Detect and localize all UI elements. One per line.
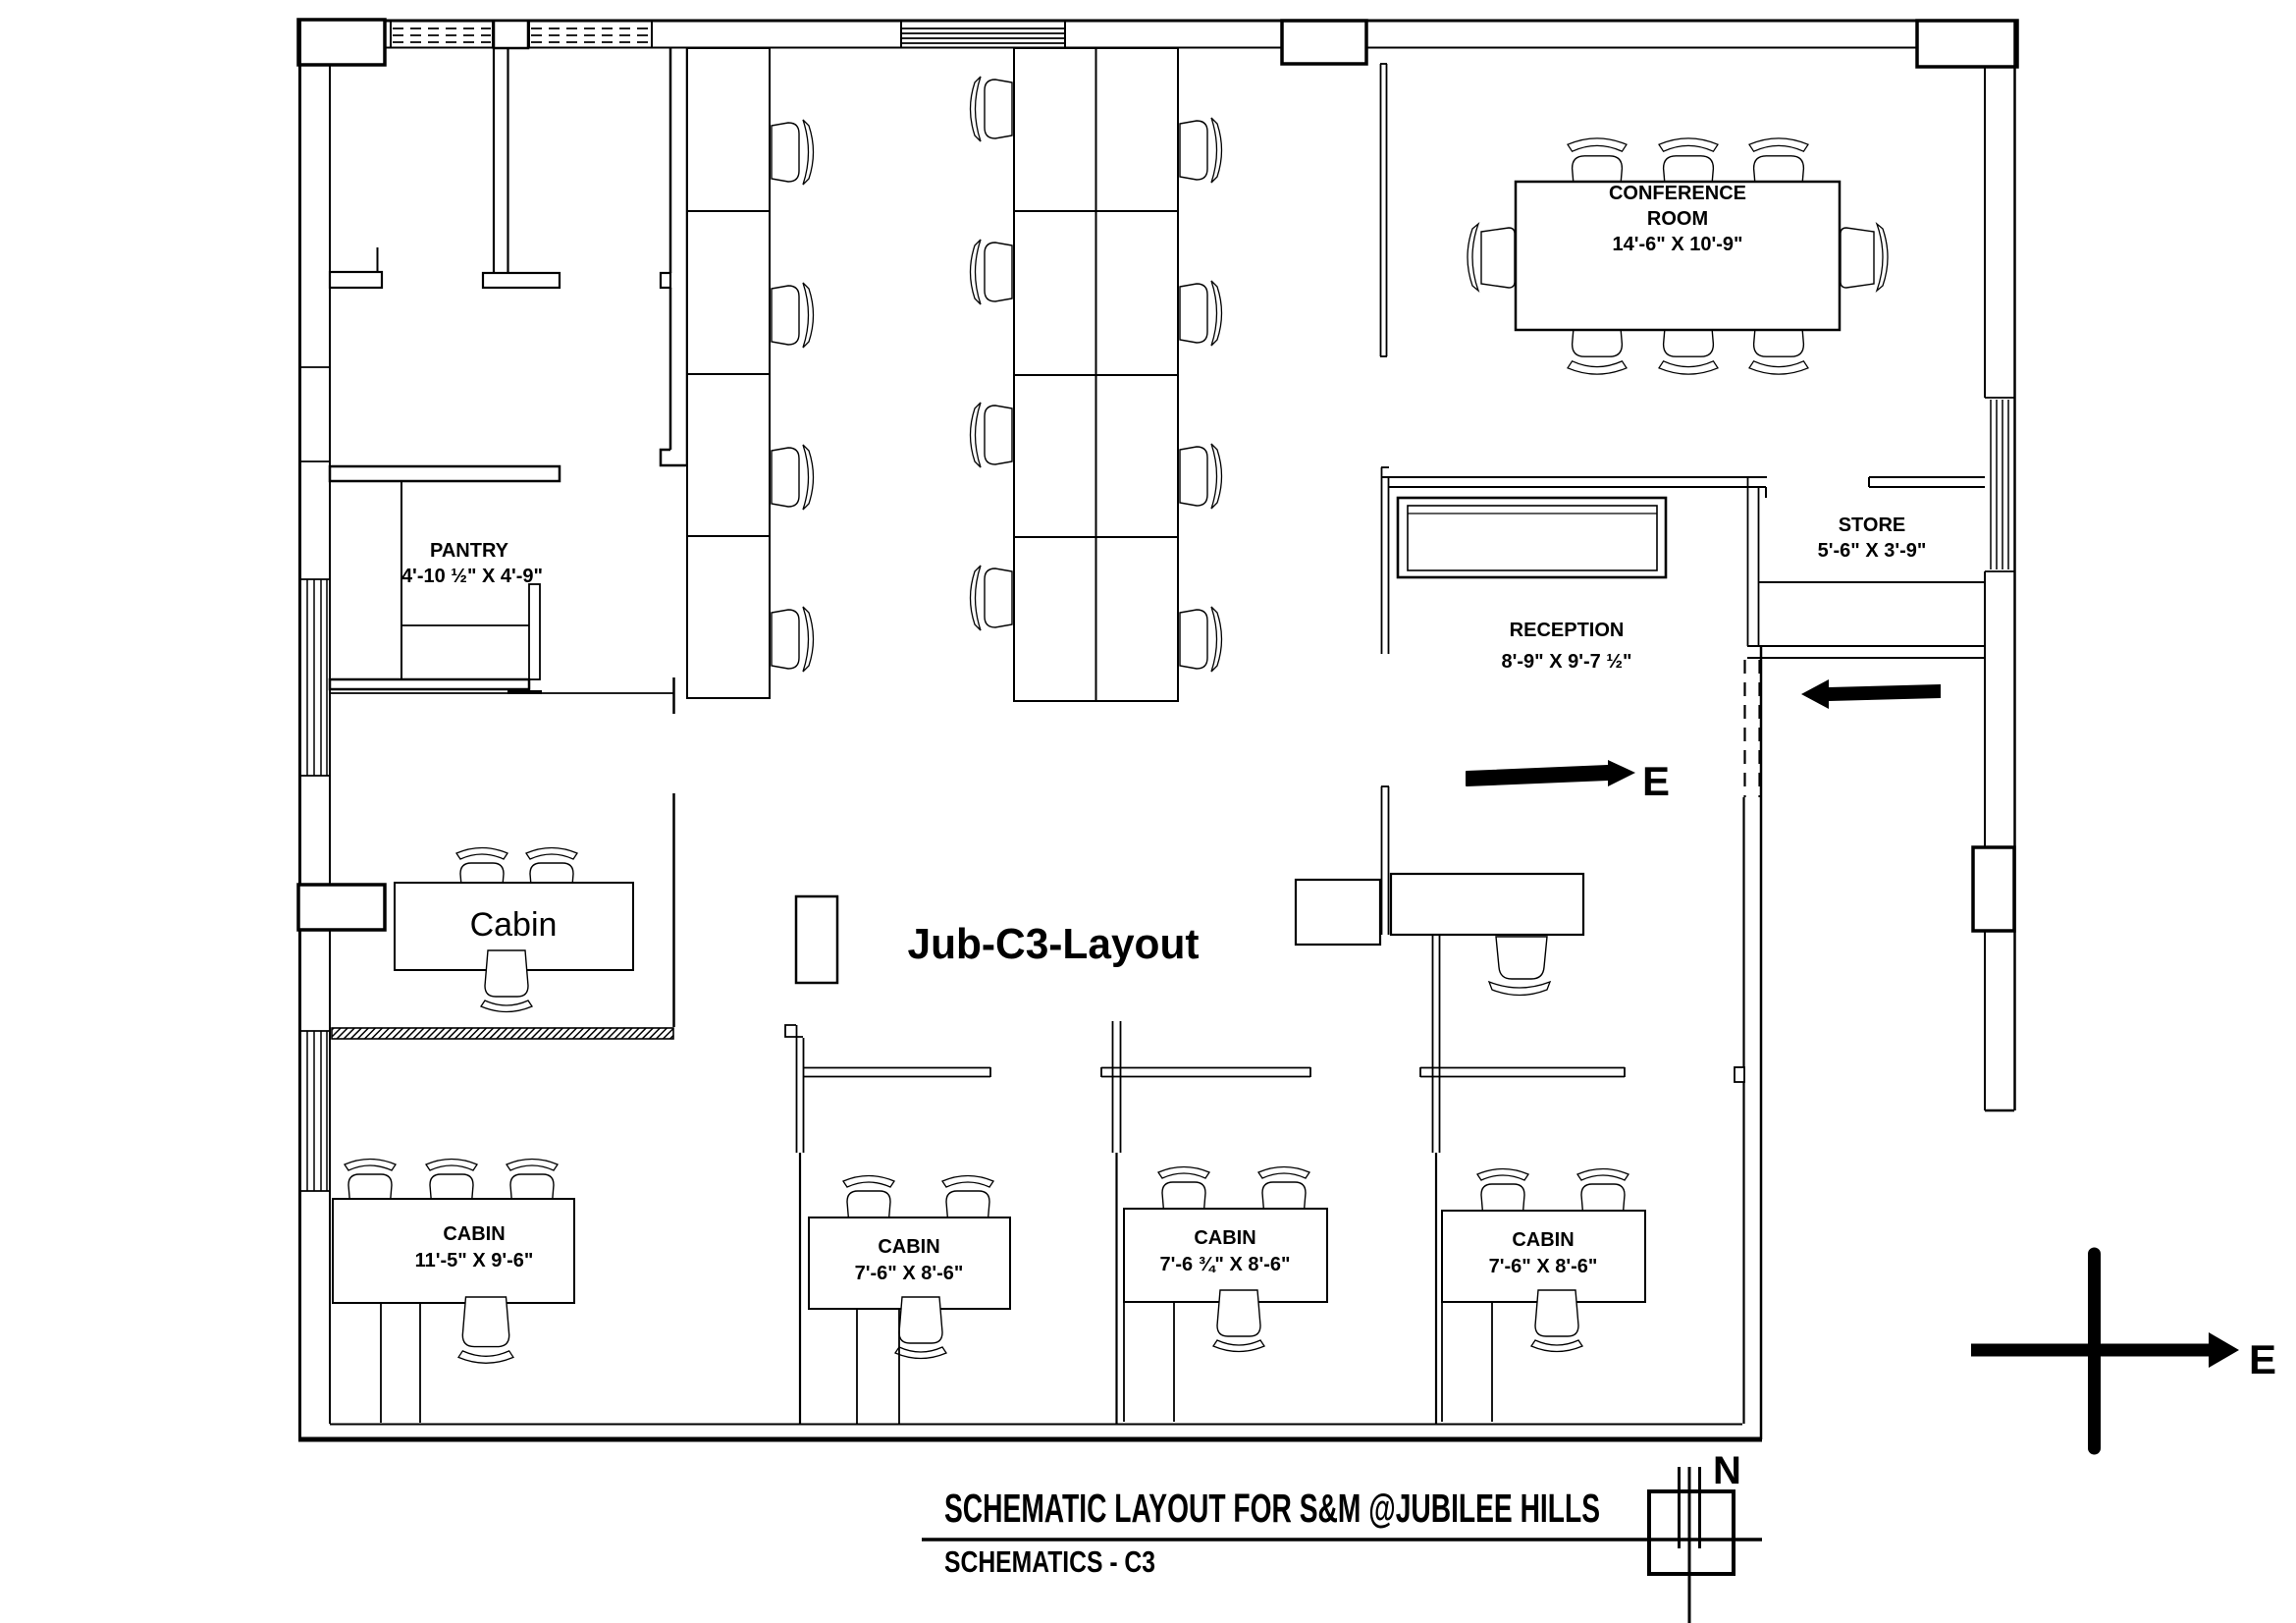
svg-text:CABIN: CABIN <box>443 1223 505 1245</box>
svg-text:7'-6" X 8'-6": 7'-6" X 8'-6" <box>1489 1256 1598 1277</box>
svg-text:SCHEMATIC LAYOUT FOR S&M @JUBI: SCHEMATIC LAYOUT FOR S&M @JUBILEE HILLS <box>944 1486 1600 1531</box>
svg-text:RECEPTION: RECEPTION <box>1510 620 1625 641</box>
svg-text:STORE: STORE <box>1839 514 1906 536</box>
svg-text:4'-10 ½" X 4'-9": 4'-10 ½" X 4'-9" <box>401 566 543 587</box>
svg-text:14'-6" X 10'-9": 14'-6" X 10'-9" <box>1613 234 1743 255</box>
svg-text:8'-9" X 9'-7 ½": 8'-9" X 9'-7 ½" <box>1502 651 1632 673</box>
svg-text:5'-6" X 3'-9": 5'-6" X 3'-9" <box>1818 540 1927 562</box>
svg-text:PANTRY: PANTRY <box>430 540 509 562</box>
svg-text:E: E <box>1642 758 1670 804</box>
svg-text:N: N <box>1713 1449 1741 1492</box>
svg-text:7'-6" X 8'-6": 7'-6" X 8'-6" <box>855 1263 964 1284</box>
svg-text:11'-5" X 9'-6": 11'-5" X 9'-6" <box>415 1250 534 1271</box>
svg-text:ROOM: ROOM <box>1647 208 1708 230</box>
svg-text:CABIN: CABIN <box>1512 1229 1574 1251</box>
svg-text:E: E <box>2249 1336 2276 1382</box>
svg-text:Cabin: Cabin <box>470 906 558 944</box>
svg-text:CABIN: CABIN <box>1194 1227 1255 1249</box>
svg-text:SCHEMATICS - C3: SCHEMATICS - C3 <box>944 1544 1155 1579</box>
svg-text:CABIN: CABIN <box>878 1236 939 1258</box>
svg-text:Jub-C3-Layout: Jub-C3-Layout <box>908 920 1200 968</box>
svg-text:7'-6 ¾" X 8'-6": 7'-6 ¾" X 8'-6" <box>1160 1254 1291 1275</box>
svg-text:CONFERENCE: CONFERENCE <box>1609 183 1746 204</box>
